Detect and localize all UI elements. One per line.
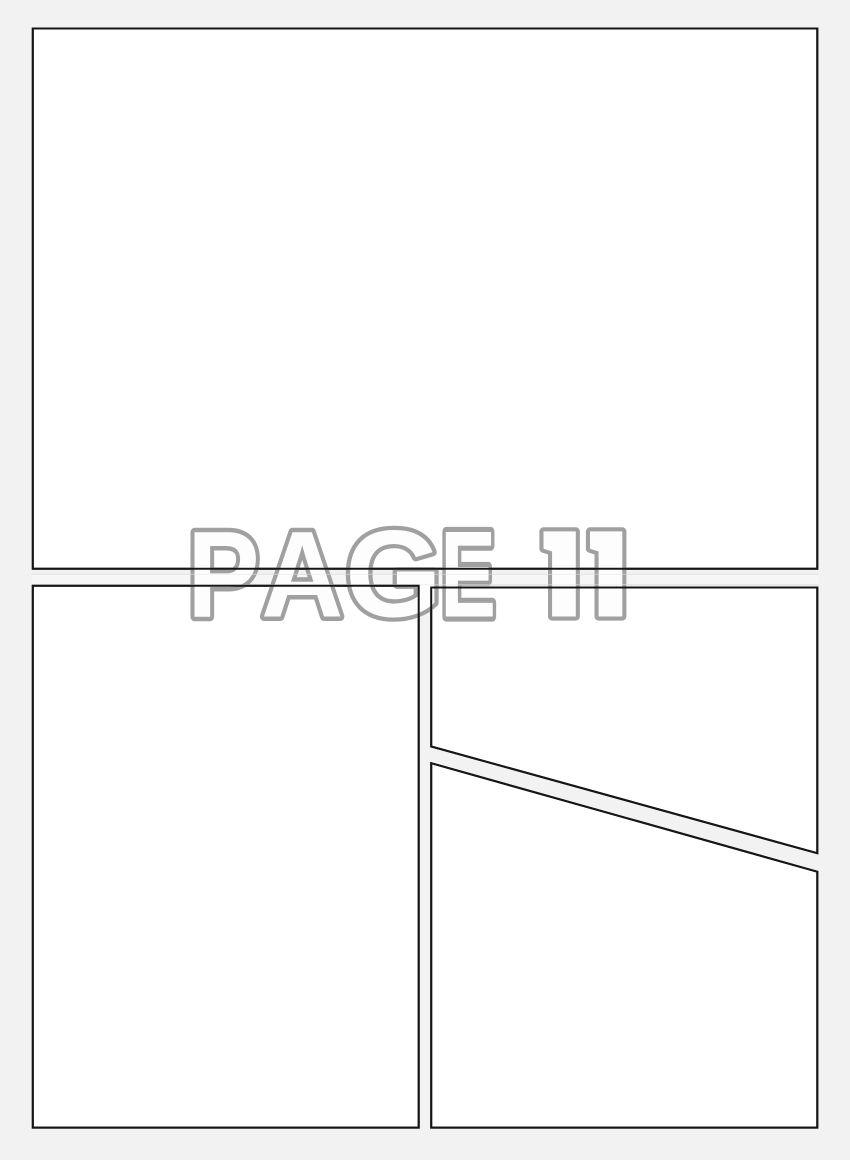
svg-text:E: E	[440, 507, 496, 644]
svg-text:G: G	[345, 506, 442, 643]
svg-text:A: A	[261, 506, 343, 643]
